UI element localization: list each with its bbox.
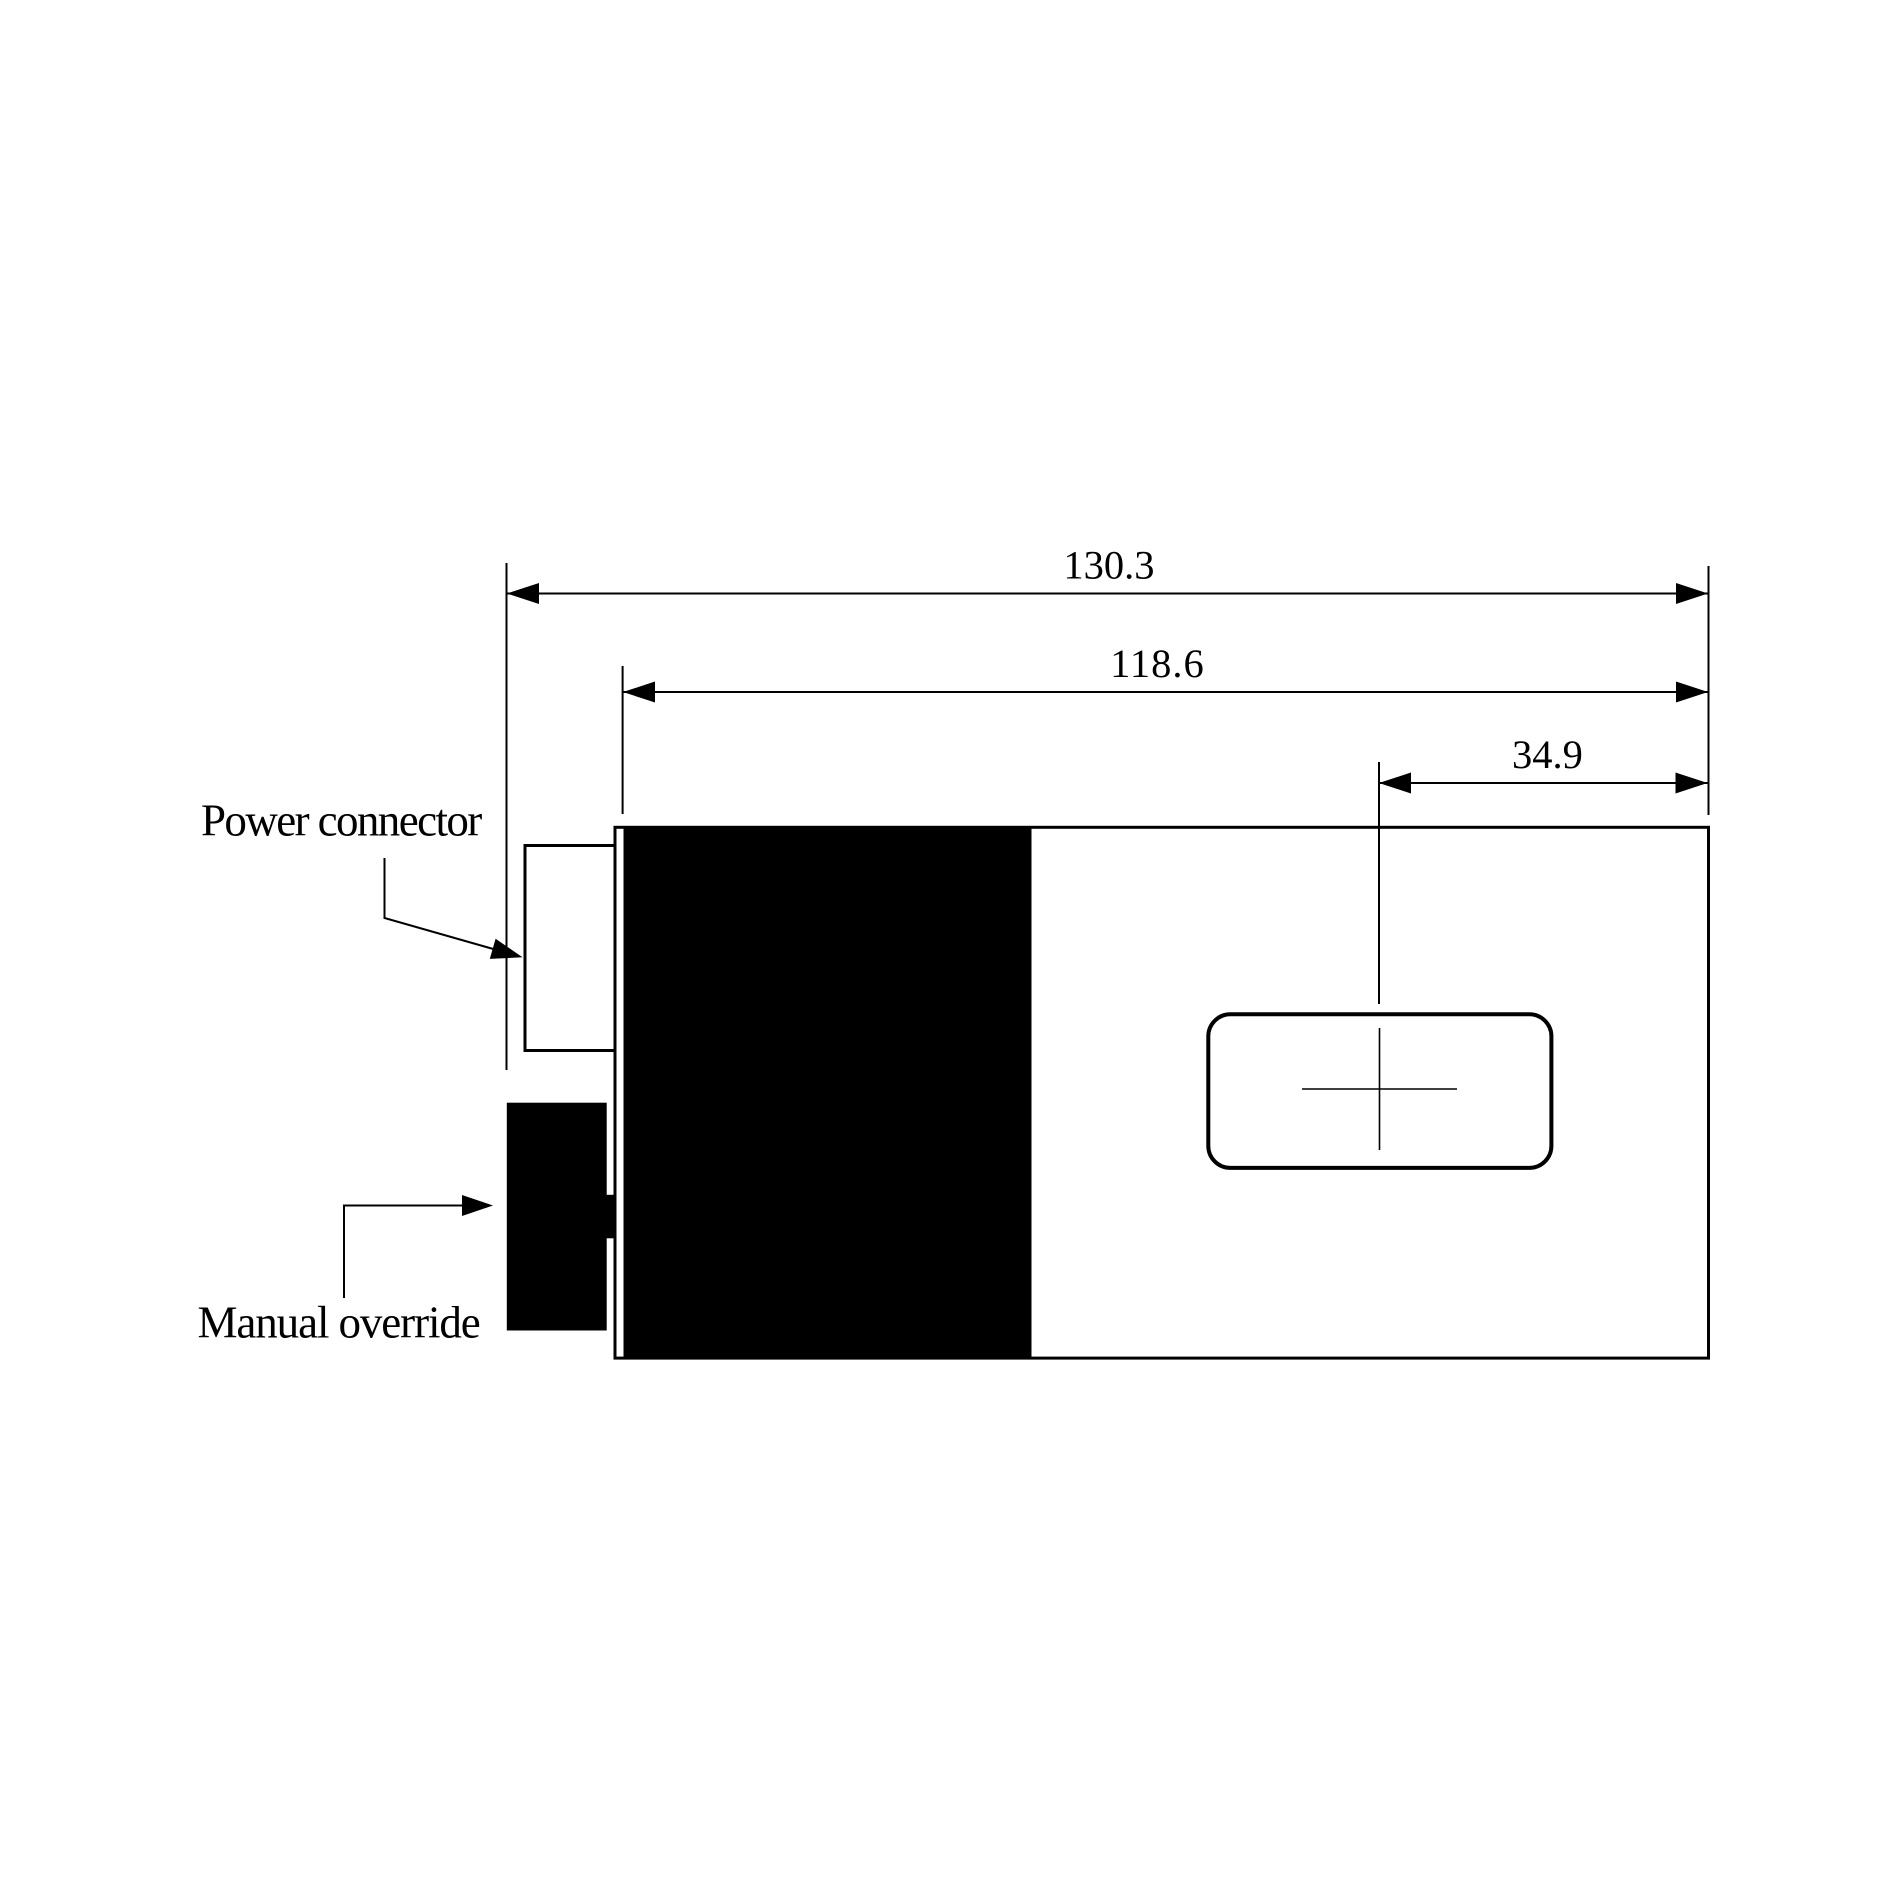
svg-text:34.9: 34.9 (1512, 732, 1583, 777)
svg-text:130.3: 130.3 (1063, 543, 1154, 588)
svg-text:Manual override: Manual override (198, 1298, 480, 1348)
svg-text:Power connector: Power connector (201, 796, 482, 846)
svg-text:118.6: 118.6 (1110, 641, 1205, 686)
